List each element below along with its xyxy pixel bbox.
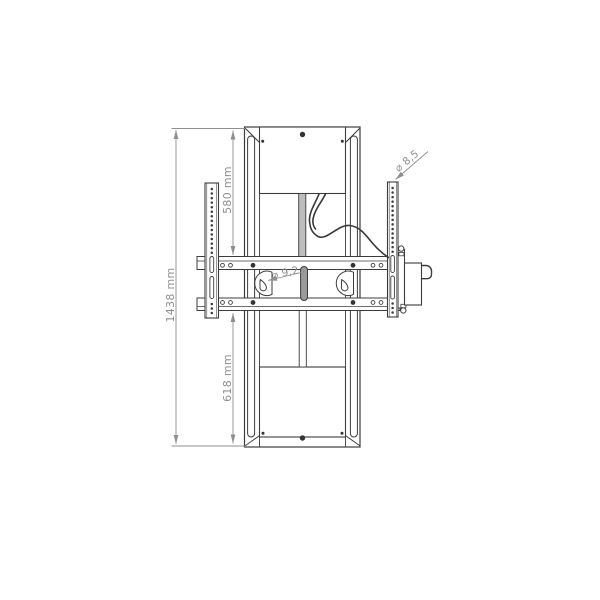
rail-hole — [391, 187, 394, 190]
rail-hole — [211, 197, 214, 200]
overall-height-label: 1438 mm — [164, 267, 177, 322]
rail-hole — [211, 192, 214, 195]
rail-hole — [211, 215, 214, 218]
rail-hole — [391, 311, 394, 314]
screw-dot — [262, 432, 265, 435]
side-bracket-assembly — [398, 246, 432, 313]
upper-section-label: 580 mm — [221, 166, 234, 214]
left-rail-holes-lower — [211, 303, 214, 315]
rail-hole — [391, 200, 394, 203]
rail-hole — [391, 205, 394, 208]
rail-hole — [211, 233, 214, 236]
rail-hole — [211, 211, 214, 214]
vesa-rail-right — [388, 182, 399, 317]
rail-hole — [211, 242, 214, 245]
rail-hole — [391, 223, 394, 226]
rail-hole — [391, 228, 394, 231]
rail-hole — [211, 307, 214, 310]
tv-lift-drawing: 1438 mm 580 mm 618 mm ⌀ 8,5 ⌀ 9,2 — [0, 0, 600, 600]
screw-dot — [341, 140, 344, 143]
rail-hole — [391, 246, 394, 249]
rail-hole — [211, 247, 214, 250]
rail-hole — [391, 196, 394, 199]
rail-hole — [211, 251, 214, 254]
motor-housing-top — [260, 127, 346, 194]
left-guide-slot — [248, 136, 255, 437]
rail-hole — [211, 220, 214, 223]
rail-hole — [391, 241, 394, 244]
screw-dot — [261, 140, 264, 143]
rail-hole — [211, 224, 214, 227]
rail-hole — [391, 250, 394, 253]
lower-section-label: 618 mm — [221, 354, 234, 402]
rail-hole — [391, 237, 394, 240]
rail-hole — [211, 303, 214, 306]
rail-hole — [211, 201, 214, 204]
rail-hole — [391, 210, 394, 213]
rail-hole — [391, 191, 394, 194]
cable-hook — [422, 266, 432, 279]
inner-tube-lower — [299, 311, 306, 368]
rail-hole — [211, 188, 214, 191]
base-housing-bottom — [260, 367, 346, 441]
left-rail-holes — [211, 188, 214, 254]
vesa-rail-left — [205, 183, 219, 318]
technical-drawing-page: 1438 mm 580 mm 618 mm ⌀ 8,5 ⌀ 9,2 — [0, 0, 600, 600]
eyelet-screw-bottom — [401, 308, 406, 313]
screw-dot — [300, 435, 305, 440]
screw-dot — [300, 132, 305, 137]
rail-hole — [391, 307, 394, 310]
inner-tube-upper — [299, 194, 306, 258]
rail-hole — [391, 302, 394, 305]
drive-box — [405, 263, 422, 305]
rail-hole — [211, 238, 214, 241]
rail-hole — [391, 219, 394, 222]
screw-dot — [341, 432, 344, 435]
rail-hole — [211, 229, 214, 232]
rail-hole — [211, 312, 214, 315]
rail-hole — [391, 232, 394, 235]
right-rail-holes — [391, 187, 394, 253]
rail-hole — [211, 206, 214, 209]
right-rail-holes-lower — [391, 302, 394, 314]
rail-hole — [391, 214, 394, 217]
eyelet-screw-top — [399, 246, 404, 251]
